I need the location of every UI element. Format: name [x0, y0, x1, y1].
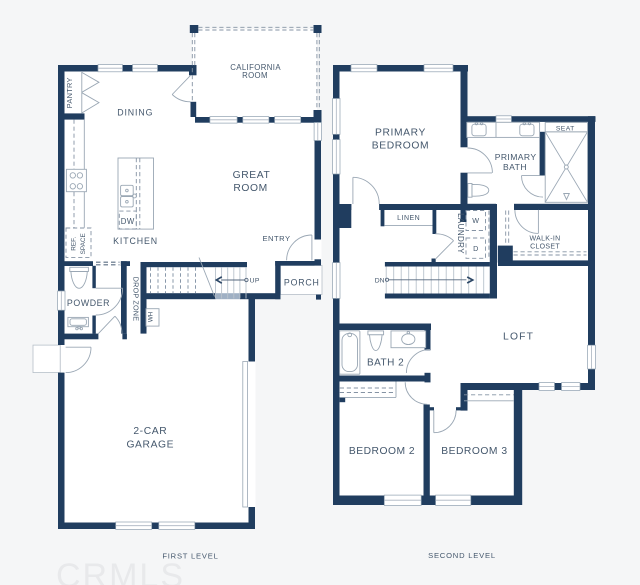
svg-text:PORCH: PORCH: [284, 278, 320, 288]
svg-text:BEDROOM 3: BEDROOM 3: [441, 446, 507, 457]
svg-text:GREAT: GREAT: [233, 170, 271, 181]
svg-text:ENTRY: ENTRY: [262, 234, 290, 243]
svg-text:PRIMARY: PRIMARY: [495, 152, 537, 162]
svg-text:PANTRY: PANTRY: [65, 77, 74, 108]
svg-text:POWDER: POWDER: [67, 298, 110, 308]
svg-text:SECOND LEVEL: SECOND LEVEL: [428, 551, 496, 560]
svg-text:BEDROOM 2: BEDROOM 2: [349, 446, 415, 457]
svg-text:W: W: [472, 216, 479, 225]
svg-text:WALK-IN: WALK-IN: [529, 236, 560, 243]
svg-text:LOFT: LOFT: [503, 331, 534, 342]
svg-text:UP: UP: [250, 277, 260, 284]
svg-text:PRIMARY: PRIMARY: [375, 128, 426, 139]
svg-text:2-CAR: 2-CAR: [133, 426, 167, 437]
svg-text:CRMLS: CRMLS: [56, 557, 185, 585]
svg-text:ROOM: ROOM: [242, 71, 268, 80]
svg-text:DROP ZONE: DROP ZONE: [131, 277, 140, 321]
svg-text:D: D: [473, 244, 478, 253]
svg-text:DINING: DINING: [117, 107, 153, 117]
svg-text:WH: WH: [147, 312, 154, 322]
svg-text:REF.: REF.: [71, 237, 78, 251]
svg-text:SEAT: SEAT: [556, 125, 575, 132]
svg-text:KITCHEN: KITCHEN: [113, 236, 158, 246]
svg-text:GARAGE: GARAGE: [126, 440, 174, 451]
svg-text:BEDROOM: BEDROOM: [372, 141, 429, 152]
svg-text:BATH: BATH: [503, 162, 527, 172]
svg-text:LAUNDRY: LAUNDRY: [456, 213, 465, 254]
svg-text:ROOM: ROOM: [233, 183, 267, 194]
svg-text:DW: DW: [121, 217, 135, 226]
svg-text:SPACE: SPACE: [80, 233, 87, 254]
svg-text:CLOSET: CLOSET: [530, 244, 560, 251]
svg-text:BATH 2: BATH 2: [367, 357, 404, 368]
svg-text:DN: DN: [375, 277, 385, 284]
svg-text:LINEN: LINEN: [397, 215, 420, 222]
